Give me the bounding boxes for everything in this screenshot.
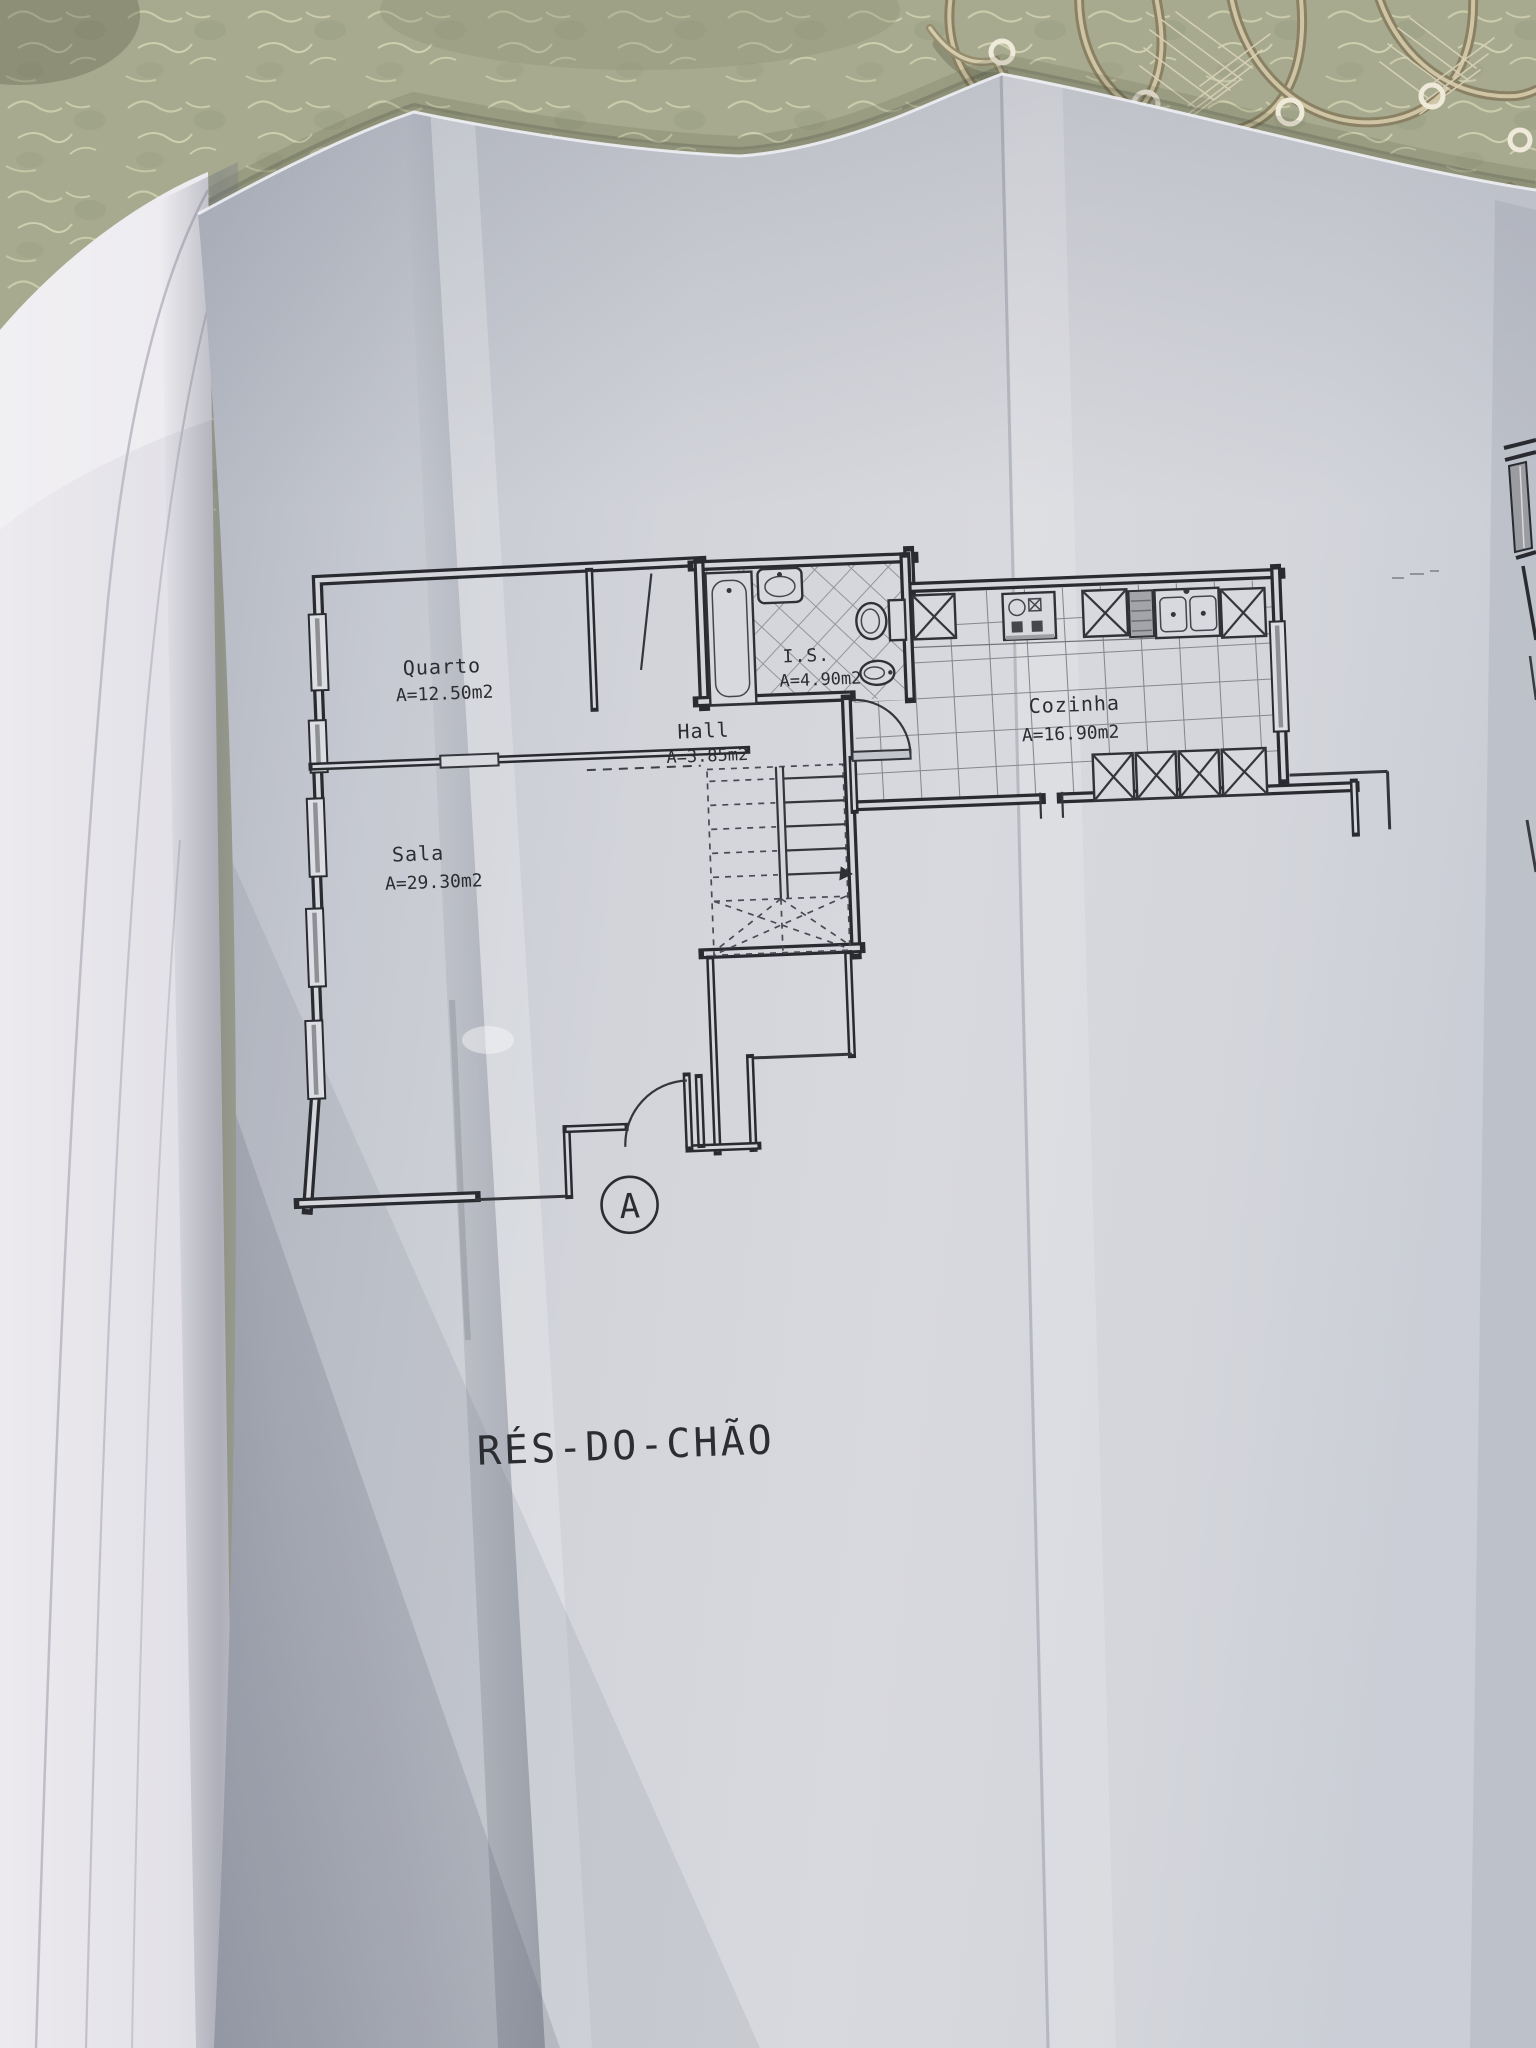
kitchen-sink-icon [1154, 587, 1220, 638]
appliance-box-icon [1220, 588, 1266, 638]
appliance-box-icon [1136, 751, 1178, 799]
appliance-box-icon [1093, 753, 1135, 801]
window-icon [305, 1020, 325, 1099]
scene-canvas: Quarto A=12.50m2 Sala A=29.30m2 Hall A=3… [0, 0, 1536, 2048]
main-page [196, 72, 1536, 2048]
section-marker-letter: A [619, 1186, 641, 1227]
room-area-is: A=4.90m2 [779, 668, 862, 691]
pocket-door-icon [440, 753, 498, 767]
room-label-hall: Hall [677, 718, 730, 744]
room-label-sala: Sala [391, 841, 444, 867]
room-label-is: I.S. [782, 645, 830, 668]
counter-hatch [1128, 590, 1154, 637]
room-area-cozinha: A=16.90m2 [1021, 722, 1119, 747]
room-area-sala: A=29.30m2 [385, 870, 483, 895]
bathroom-sink-icon [757, 568, 802, 604]
toilet-icon [856, 600, 906, 642]
room-label-cozinha: Cozinha [1028, 691, 1120, 718]
bathtub-icon [705, 572, 756, 706]
room-area-quarto: A=12.50m2 [395, 682, 493, 707]
window-icon [307, 798, 327, 877]
paper-scuff [462, 1026, 514, 1054]
appliance-box-icon [1222, 748, 1268, 796]
appliance-box-icon [1179, 750, 1221, 798]
bidet-icon [860, 660, 895, 685]
room-label-quarto: Quarto [402, 653, 481, 680]
window-icon [306, 908, 326, 987]
room-area-hall: A=3.85m2 [666, 745, 749, 768]
stove-icon [1002, 592, 1056, 640]
photo-floor-plan-on-table: Quarto A=12.50m2 Sala A=29.30m2 Hall A=3… [0, 0, 1536, 2048]
kitchen-window-icon [1270, 621, 1289, 731]
appliance-box-icon [1082, 589, 1128, 637]
appliance-box-icon [912, 594, 956, 640]
window-icon [309, 614, 329, 691]
